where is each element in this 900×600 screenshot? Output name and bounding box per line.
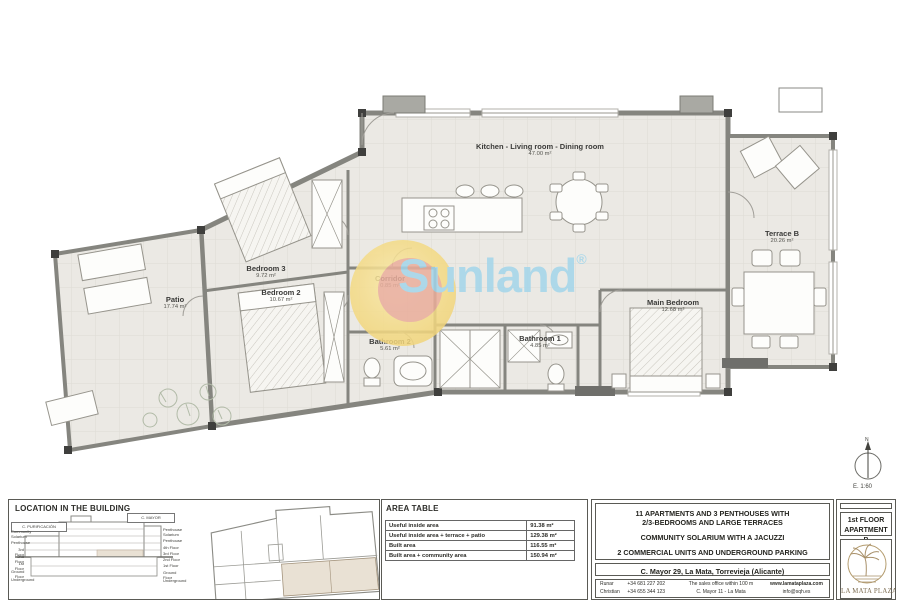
north-arrow-icon	[855, 441, 881, 479]
address-box: C. Mayor 29, La Mata, Torrevieja (Alican…	[595, 563, 830, 576]
table-row: Built area 116.55 m²	[385, 541, 575, 551]
street-label-mayor: C. MAYOR	[127, 513, 175, 523]
brand-logo-box: LA MATA PLAZA	[840, 539, 892, 599]
room-label-main-bedroom: Main Bedroom 12.68 m²	[647, 298, 699, 315]
address: C. Mayor 29, La Mata, Torrevieja (Alican…	[596, 567, 829, 576]
project-line: COMMUNITY SOLARIUM WITH A JACUZZI	[596, 533, 829, 542]
sheet-title-box: 1st FLOOR APARTMENT B	[840, 512, 892, 536]
location-section: LOCATION IN THE BUILDING C. PURIFICACIÓN…	[8, 499, 380, 600]
room-label-bedroom2: Bedroom 2 10.67 m²	[261, 288, 300, 305]
floor-label: Underground	[163, 579, 185, 584]
location-heading: LOCATION IN THE BUILDING	[15, 504, 130, 513]
sheet-section: 1st FLOOR APARTMENT B LA MATA PLAZA	[836, 499, 896, 600]
project-description-box: 11 APARTMENTS AND 3 PENTHOUSES WITH 2/3-…	[595, 503, 830, 560]
room-label-kitchen: Kitchen - Living room - Dining room 47.0…	[476, 142, 604, 159]
scale-label: E. 1:60	[853, 484, 872, 490]
floor-plan-drawing	[0, 0, 900, 497]
contact-box: Runar +34 681 227 202 Christian +34 655 …	[595, 579, 830, 598]
floor-plan-sheet: Kitchen - Living room - Dining room 47.0…	[0, 0, 900, 600]
room-label-patio: Patio 17.74 m²	[164, 295, 187, 312]
table-row: Useful inside area 91.38 m²	[385, 520, 575, 531]
contact-phones: Runar +34 681 227 202 Christian +34 655 …	[596, 581, 678, 596]
sheet-floor: 1st FLOOR	[841, 516, 891, 526]
table-row: Built area + community area 150.94 m²	[385, 551, 575, 561]
wall-stub	[680, 96, 713, 113]
floor-label: 4th Floor	[163, 546, 185, 551]
table-row: Useful inside area + terrace + patio 129…	[385, 531, 575, 541]
floor-label: Underground	[11, 578, 24, 583]
room-label-corridor: Corridor 0.85 m²	[375, 274, 405, 291]
project-line: 2/3-BEDROOMS AND LARGE TERRACES	[596, 518, 829, 527]
project-line: 2 COMMERCIAL UNITS AND UNDERGROUND PARKI…	[596, 548, 829, 557]
contact-row: Christian +34 655 344 123	[600, 589, 678, 597]
floor-label: 2nd Floor	[163, 558, 185, 563]
wall-stub	[383, 96, 425, 113]
email: info@sqh.es	[764, 589, 829, 597]
brand-name: LA MATA PLAZA	[841, 588, 891, 595]
floor-label: 3rd Floor	[163, 552, 185, 557]
floor-label: Penthouse	[163, 539, 185, 544]
sheet-strip	[840, 503, 892, 509]
room-label-terrace-b: Terrace B 20.26 m²	[765, 229, 799, 246]
floor-label: Penthouse Solarium	[163, 528, 185, 537]
sales-office-info: The sales office within 100 m C. Mayor 1…	[678, 581, 764, 596]
upper-floor-overhang	[779, 88, 822, 112]
room-label-bathroom1: Bathroom 1 4.85 m²	[519, 334, 561, 351]
area-table: Useful inside area 91.38 m² Useful insid…	[385, 520, 575, 561]
contact-row: Runar +34 681 227 202	[600, 581, 678, 589]
area-table-section: AREA TABLE Useful inside area 91.38 m² U…	[381, 499, 588, 600]
room-label-bedroom3: Bedroom 3 9.72 m²	[246, 264, 285, 281]
website: www.lamataplaza.com	[764, 581, 829, 589]
project-line: 11 APARTMENTS AND 3 PENTHOUSES WITH	[596, 509, 829, 518]
project-info-section: 11 APARTMENTS AND 3 PENTHOUSES WITH 2/3-…	[591, 499, 834, 600]
palm-tree-logo-icon	[841, 540, 893, 588]
area-table-heading: AREA TABLE	[386, 504, 439, 513]
floor-label: 1st Floor	[163, 564, 185, 569]
floor-label: Community Solarium	[11, 530, 24, 539]
room-label-bathroom2: Bathroom 2 5.61 m²	[369, 337, 411, 354]
floor-label: Penthouse	[11, 541, 24, 546]
web-email-info: www.lamataplaza.com info@sqh.es	[764, 581, 829, 596]
north-label: N	[865, 437, 869, 443]
key-plan	[185, 506, 380, 600]
